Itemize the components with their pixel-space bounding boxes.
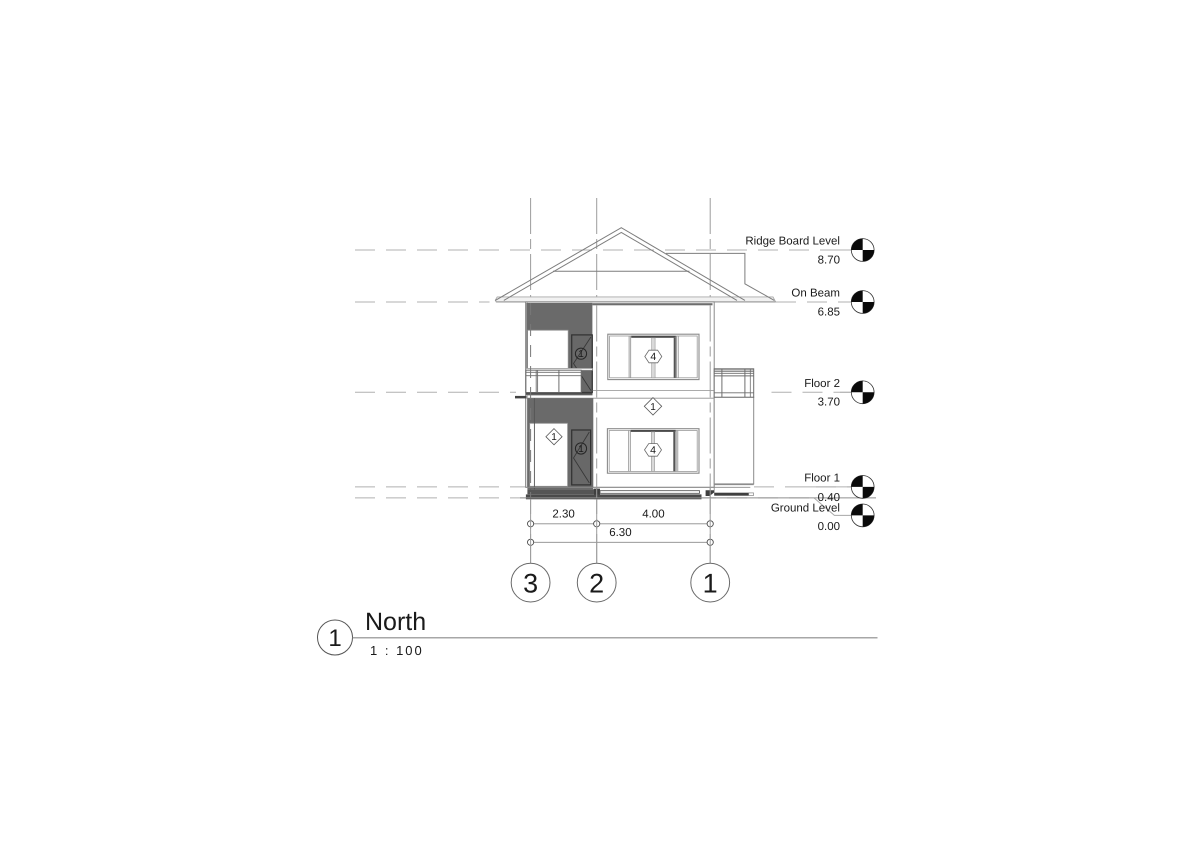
svg-text:3.70: 3.70 (818, 397, 840, 409)
svg-text:1: 1 (328, 625, 341, 652)
svg-text:Ground Level: Ground Level (771, 502, 840, 514)
svg-text:1: 1 (578, 444, 584, 455)
svg-text:0.00: 0.00 (818, 521, 840, 533)
svg-text:4: 4 (650, 351, 656, 363)
svg-text:1: 1 (703, 568, 718, 598)
svg-text:1 : 100: 1 : 100 (370, 643, 424, 658)
svg-text:1: 1 (551, 432, 557, 443)
svg-text:2: 2 (589, 568, 604, 598)
svg-text:Floor 2: Floor 2 (804, 378, 840, 390)
svg-text:4.00: 4.00 (642, 509, 664, 521)
svg-text:On Beam: On Beam (791, 288, 840, 300)
svg-text:North: North (365, 608, 426, 636)
svg-text:3: 3 (523, 568, 538, 598)
svg-text:1: 1 (578, 349, 584, 360)
svg-text:Floor 1: Floor 1 (804, 473, 840, 485)
svg-text:1: 1 (650, 402, 656, 413)
svg-text:4: 4 (650, 445, 656, 457)
svg-text:2.30: 2.30 (552, 509, 574, 521)
svg-text:6.85: 6.85 (818, 306, 840, 318)
svg-text:Ridge Board Level: Ridge Board Level (745, 236, 840, 248)
svg-text:8.70: 8.70 (818, 254, 840, 266)
svg-text:6.30: 6.30 (609, 527, 631, 539)
